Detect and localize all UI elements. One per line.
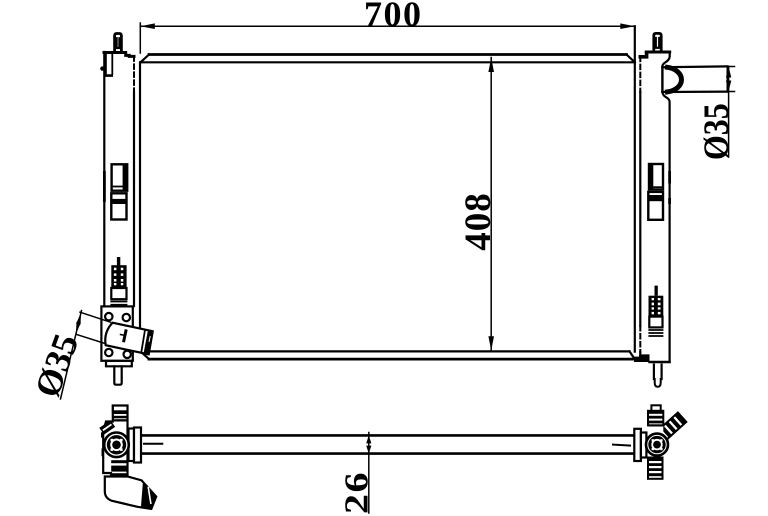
svg-text:700: 700 — [364, 0, 423, 34]
svg-text:408: 408 — [458, 192, 499, 251]
svg-text:Ø35: Ø35 — [697, 103, 736, 160]
svg-text:26: 26 — [338, 471, 375, 514]
